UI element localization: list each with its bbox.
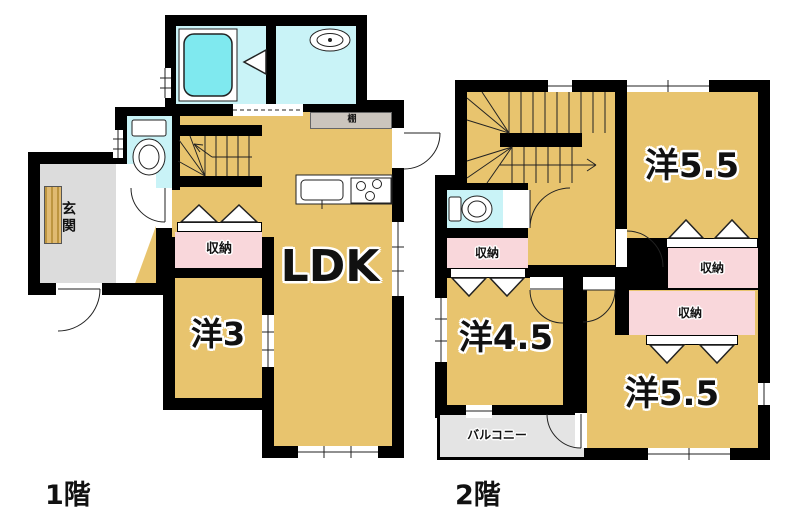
room-label-closet3: 収納 bbox=[678, 307, 702, 319]
window bbox=[548, 80, 572, 92]
stair-center-wall bbox=[500, 133, 582, 147]
room-label-yo3: 洋3 bbox=[191, 318, 245, 350]
door-opening bbox=[530, 277, 563, 290]
room-label-yo55-bottom: 洋5.5 bbox=[625, 377, 719, 411]
window bbox=[298, 446, 378, 458]
hall-2f-floor bbox=[528, 183, 615, 265]
room-label-entrance: 玄関 bbox=[61, 201, 75, 235]
room-label-closet2: 収納 bbox=[700, 262, 724, 274]
room-washroom bbox=[276, 26, 356, 104]
window bbox=[392, 222, 404, 296]
floorplan-canvas: LDK 洋3 収納 玄関 棚 1階 bbox=[0, 0, 800, 527]
closet-door-2f-top bbox=[666, 238, 758, 248]
door-opening bbox=[616, 229, 627, 267]
room-label-yo55-top: 洋5.5 bbox=[645, 149, 739, 183]
closet-door-2f-left bbox=[450, 268, 526, 278]
wall bbox=[177, 125, 262, 136]
opening bbox=[262, 187, 274, 205]
room-bathroom bbox=[176, 26, 266, 104]
room-label-closet-1f: 収納 bbox=[206, 243, 232, 256]
wall bbox=[177, 176, 262, 187]
window bbox=[648, 448, 730, 460]
closet-door-1f bbox=[177, 222, 262, 232]
window bbox=[160, 68, 171, 98]
shelf-label: 棚 bbox=[347, 116, 356, 125]
entrance-door-opening bbox=[56, 283, 102, 295]
window bbox=[262, 315, 274, 367]
room-label-yo45: 洋4.5 bbox=[459, 321, 553, 355]
window bbox=[113, 130, 123, 158]
wall bbox=[615, 277, 629, 335]
hall-floor bbox=[156, 195, 263, 222]
balcony-door-opening bbox=[575, 413, 587, 448]
side-door-opening bbox=[392, 128, 404, 168]
room-label-ldk: LDK bbox=[281, 245, 380, 289]
room-label-closet1: 収納 bbox=[475, 247, 499, 259]
balcony-label: バルコニー bbox=[467, 429, 527, 441]
window bbox=[435, 298, 447, 362]
floor2-title: 2階 bbox=[455, 473, 501, 512]
closet-door-2f-mid bbox=[646, 335, 738, 345]
window bbox=[627, 80, 709, 92]
floor1-title: 1階 bbox=[45, 473, 91, 512]
toilet-2f-doorway bbox=[503, 190, 530, 228]
door-opening bbox=[583, 277, 615, 290]
room-toilet-2f bbox=[447, 190, 503, 228]
window bbox=[758, 383, 770, 405]
window bbox=[466, 405, 492, 418]
sliding-door-opening bbox=[233, 104, 303, 116]
